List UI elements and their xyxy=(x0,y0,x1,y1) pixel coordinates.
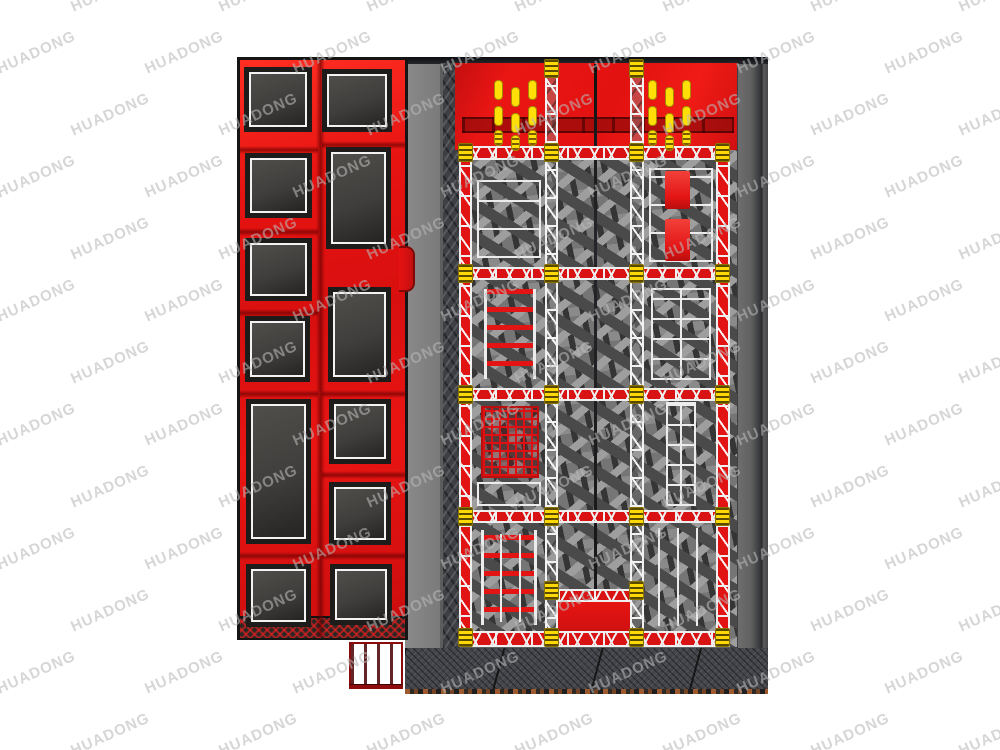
mat-seam xyxy=(322,552,406,560)
watermark-text: HUADONG xyxy=(142,648,226,698)
grip-bar xyxy=(682,80,691,100)
watermark-text: HUADONG xyxy=(882,152,966,202)
watermark-text: HUADONG xyxy=(142,28,226,78)
safety-pad xyxy=(629,264,644,283)
mat-seam xyxy=(322,390,406,398)
watermark-text: HUADONG xyxy=(808,338,892,388)
pit-element-ladder-white xyxy=(666,402,696,506)
grip-bar xyxy=(665,113,674,133)
safety-pad xyxy=(458,143,473,162)
grip-bar xyxy=(494,80,503,100)
mat-seam xyxy=(240,390,318,398)
watermark-text: HUADONG xyxy=(68,710,152,750)
mat-seam xyxy=(240,146,318,154)
pit-element-white-box xyxy=(477,482,541,506)
truss-beam xyxy=(459,631,730,647)
pit-element-red-mat xyxy=(665,171,690,209)
truss-beam xyxy=(459,146,730,160)
safety-pad xyxy=(458,264,473,283)
safety-pad xyxy=(544,264,559,283)
watermark-text: HUADONG xyxy=(882,400,966,450)
platform-front-trim xyxy=(405,689,768,694)
watermark-text: HUADONG xyxy=(882,524,966,574)
safety-pad xyxy=(544,581,559,600)
grip-bar xyxy=(528,106,537,126)
watermark-text: HUADONG xyxy=(956,710,1000,750)
zone-side-bumper xyxy=(399,246,415,292)
trampoline-bed xyxy=(327,74,387,127)
watermark-text: HUADONG xyxy=(0,648,78,698)
grip-bar xyxy=(648,106,657,126)
watermark-text: HUADONG xyxy=(808,462,892,512)
mat-seam xyxy=(316,60,325,637)
truss-beam xyxy=(459,267,730,280)
watermark-text: HUADONG xyxy=(142,152,226,202)
trampoline-bed xyxy=(250,158,307,213)
mat-seam xyxy=(322,141,406,149)
watermark-text: HUADONG xyxy=(660,710,744,750)
watermark-text: HUADONG xyxy=(0,462,4,512)
watermark-text: HUADONG xyxy=(808,586,892,636)
watermark-text: HUADONG xyxy=(956,0,1000,15)
grip-bar xyxy=(682,106,691,126)
watermark-text: HUADONG xyxy=(0,524,78,574)
trampoline-bed xyxy=(250,243,307,296)
mat-seam xyxy=(240,552,318,560)
safety-pad xyxy=(544,143,559,162)
watermark-text: HUADONG xyxy=(216,0,300,15)
watermark-text: HUADONG xyxy=(882,276,966,326)
grip-bar xyxy=(528,80,537,100)
pit-element-net xyxy=(481,406,539,478)
grip-bar xyxy=(665,87,674,107)
watermark-text: HUADONG xyxy=(0,586,4,636)
trampoline-bed xyxy=(333,292,386,377)
pit-element-rails xyxy=(658,528,704,626)
safety-pad xyxy=(629,507,644,526)
safety-pad xyxy=(544,507,559,526)
scene-canvas: HUADONGHUADONGHUADONGHUADONGHUADONGHUADO… xyxy=(0,0,1000,750)
watermark-text: HUADONG xyxy=(68,214,152,264)
pit-element-rails xyxy=(500,534,538,622)
watermark-text: HUADONG xyxy=(882,28,966,78)
safety-pad xyxy=(629,385,644,404)
trampoline-bed xyxy=(331,152,386,244)
watermark-text: HUADONG xyxy=(808,0,892,15)
truss-beam xyxy=(558,589,631,602)
trampoline-bed xyxy=(250,321,305,377)
watermark-text: HUADONG xyxy=(956,338,1000,388)
platform-right-edge xyxy=(737,64,768,690)
pit-element-red-mat xyxy=(665,219,690,261)
watermark-text: HUADONG xyxy=(0,276,78,326)
grip-bar xyxy=(682,130,691,146)
watermark-text: HUADONG xyxy=(68,338,152,388)
watermark-text: HUADONG xyxy=(956,214,1000,264)
watermark-text: HUADONG xyxy=(364,0,448,15)
safety-pad xyxy=(458,507,473,526)
watermark-text: HUADONG xyxy=(68,586,152,636)
grip-bar xyxy=(511,87,520,107)
safety-pad xyxy=(715,507,730,526)
watermark-text: HUADONG xyxy=(0,152,78,202)
grip-bar xyxy=(511,113,520,133)
watermark-text: HUADONG xyxy=(142,276,226,326)
trampoline-bed xyxy=(251,569,306,622)
watermark-text: HUADONG xyxy=(956,462,1000,512)
watermark-text: HUADONG xyxy=(0,400,78,450)
watermark-text: HUADONG xyxy=(512,710,596,750)
grip-bar xyxy=(511,135,520,151)
watermark-text: HUADONG xyxy=(808,214,892,264)
safety-pad xyxy=(544,385,559,404)
watermark-text: HUADONG xyxy=(882,648,966,698)
trampoline-bed xyxy=(334,404,386,459)
watermark-text: HUADONG xyxy=(0,338,4,388)
watermark-text: HUADONG xyxy=(660,0,744,15)
safety-pad xyxy=(458,385,473,404)
watermark-text: HUADONG xyxy=(0,0,4,15)
pit-element-white-box xyxy=(477,180,541,258)
trampoline-bed xyxy=(334,487,386,540)
trampoline-bed xyxy=(249,72,307,127)
safety-pad xyxy=(458,628,473,647)
watermark-text: HUADONG xyxy=(956,90,1000,140)
grip-bar xyxy=(494,106,503,126)
grip-bar xyxy=(665,135,674,151)
watermark-text: HUADONG xyxy=(68,462,152,512)
watermark-text: HUADONG xyxy=(0,28,78,78)
watermark-text: HUADONG xyxy=(216,710,300,750)
watermark-text: HUADONG xyxy=(808,90,892,140)
truss-beam xyxy=(459,510,730,523)
watermark-text: HUADONG xyxy=(956,586,1000,636)
safety-pad xyxy=(629,628,644,647)
mat-seam xyxy=(240,228,318,236)
platform-bottom-edge xyxy=(405,648,768,690)
safety-pad xyxy=(544,59,559,78)
safety-pad xyxy=(715,143,730,162)
pit-element-ladder-white xyxy=(651,288,711,380)
safety-pad xyxy=(629,59,644,78)
watermark-text: HUADONG xyxy=(0,214,4,264)
truss-beam xyxy=(459,388,730,401)
entry-steps xyxy=(349,642,403,688)
watermark-text: HUADONG xyxy=(0,90,4,140)
mat-seam xyxy=(240,309,318,317)
grip-bar xyxy=(648,130,657,146)
entry-steps-edge xyxy=(349,684,403,689)
safety-pad xyxy=(544,628,559,647)
watermark-text: HUADONG xyxy=(142,524,226,574)
safety-pad xyxy=(629,581,644,600)
grip-bar xyxy=(494,130,503,146)
trampoline-bed xyxy=(251,404,306,539)
pit-element-ladder-red xyxy=(484,289,536,379)
safety-pad xyxy=(715,264,730,283)
mat-seam xyxy=(322,471,406,479)
watermark-text: HUADONG xyxy=(364,710,448,750)
watermark-text: HUADONG xyxy=(68,0,152,15)
safety-pad xyxy=(629,143,644,162)
watermark-text: HUADONG xyxy=(512,0,596,15)
trampoline-bed xyxy=(335,569,387,620)
watermark-text: HUADONG xyxy=(0,710,4,750)
safety-pad xyxy=(715,628,730,647)
grip-bar xyxy=(648,80,657,100)
safety-pad xyxy=(715,385,730,404)
watermark-text: HUADONG xyxy=(142,400,226,450)
watermark-text: HUADONG xyxy=(808,710,892,750)
grip-bar xyxy=(528,130,537,146)
watermark-text: HUADONG xyxy=(68,90,152,140)
